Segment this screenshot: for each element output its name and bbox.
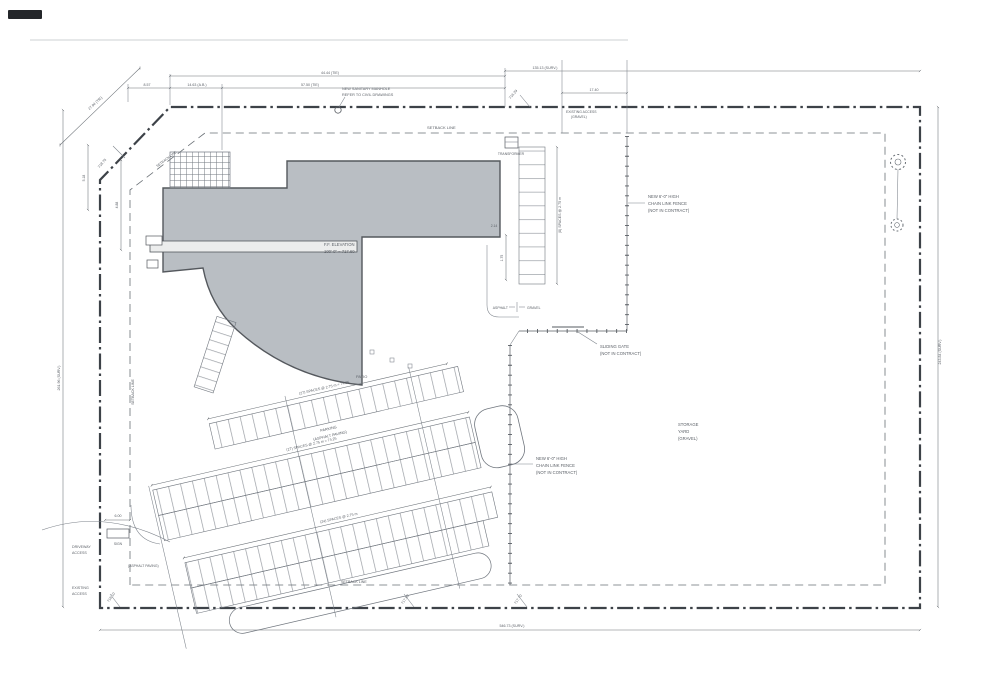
transformer: TRANSFORMER xyxy=(498,137,525,156)
east-row-count: (8) SPACES @ 2.75 m xyxy=(558,197,562,233)
setback-label-top: SETBACK LINE xyxy=(427,125,456,130)
dim-right: 243.84 (SURV.) xyxy=(938,340,942,365)
fence-note-upper: NEW 6'-0" HIGH CHAIN LINK FENCE (NOT IN … xyxy=(628,194,690,213)
site-plan-sheet: F.F. ELEVATION 100'-0" = 717.60 PATIO (8… xyxy=(0,0,981,676)
ff-elevation-value: 100'-0" = 717.60 xyxy=(324,249,355,254)
svg-text:(NOT IN CONTRACT): (NOT IN CONTRACT) xyxy=(600,351,642,356)
dimension-lines xyxy=(60,60,938,630)
sign-box xyxy=(107,529,129,538)
gravel-label: GRAVEL xyxy=(527,306,541,310)
trellis-grid xyxy=(170,152,230,188)
dim-2794: 27.94 (TIE) xyxy=(87,96,103,111)
tree-icon xyxy=(891,155,906,170)
dim-214: 2.14 xyxy=(491,224,498,228)
svg-text:CHAIN LINK FENCE: CHAIN LINK FENCE xyxy=(536,463,575,468)
exterior-stairs xyxy=(194,316,236,393)
scan-artifact xyxy=(8,10,628,40)
transformer-label: TRANSFORMER xyxy=(498,152,525,156)
svg-text:716.29: 716.29 xyxy=(508,89,518,100)
svg-text:718.75: 718.75 xyxy=(97,158,107,169)
dim-518: 5.18 xyxy=(82,175,86,182)
svg-text:YARD: YARD xyxy=(678,429,689,434)
svg-text:NEW 6'-0" HIGH: NEW 6'-0" HIGH xyxy=(648,194,679,199)
svg-text:(GRAVEL): (GRAVEL) xyxy=(571,115,587,119)
svg-text:STORAGE: STORAGE xyxy=(678,422,699,427)
svg-text:NEW SANITARY MANHOLE: NEW SANITARY MANHOLE xyxy=(342,87,391,91)
dim-1463: 14.63 (A.B.) xyxy=(187,83,206,87)
building-footprint xyxy=(146,152,500,393)
svg-text:DRIVEWAY: DRIVEWAY xyxy=(72,545,91,549)
dim-13513: 135.13 (SURV.) xyxy=(533,66,558,70)
svg-text:EXISTING: EXISTING xyxy=(72,586,89,590)
svg-text:(NOT IN CONTRACT): (NOT IN CONTRACT) xyxy=(536,470,578,475)
setback-label-left: SETBACK LINE xyxy=(131,379,135,405)
dim-857: 8.57 xyxy=(144,83,151,87)
svg-text:718.10: 718.10 xyxy=(106,592,116,603)
dim-175: 1.75 xyxy=(500,255,504,262)
dim-5750: 57.50 (TIE) xyxy=(301,83,319,87)
svg-text:NEW 6'-0" HIGH: NEW 6'-0" HIGH xyxy=(536,456,567,461)
storage-yard-label: STORAGE YARD (GRAVEL) xyxy=(678,422,699,441)
svg-text:ACCESS: ACCESS xyxy=(72,551,87,555)
svg-text:REFER TO CIVIL DRAWINGS: REFER TO CIVIL DRAWINGS xyxy=(342,93,394,97)
surface-transition: ASPHALT GRAVEL xyxy=(493,302,541,312)
tree-icon xyxy=(891,219,903,231)
svg-text:EXISTING ACCESS: EXISTING ACCESS xyxy=(566,110,597,114)
parking-field: (27) SPACES @ 2.75 m = 74.25 (27) SPACES… xyxy=(136,345,553,652)
svg-text:CHAIN LINK FENCE: CHAIN LINK FENCE xyxy=(648,201,687,206)
svg-text:(NOT IN CONTRACT): (NOT IN CONTRACT) xyxy=(648,208,690,213)
ff-elevation-label: F.F. ELEVATION xyxy=(324,242,355,247)
sign-label: SIGN xyxy=(114,542,123,546)
driveway-dim: 6.00 xyxy=(115,514,122,518)
parking-label: PARKING xyxy=(320,425,337,433)
setback-label-bottom: SETBACK LINE xyxy=(341,580,367,584)
asphalt-note: (ASPHALT PAVING) xyxy=(128,564,159,568)
existing-access-note: EXISTING ACCESS (GRAVEL) xyxy=(566,110,597,119)
svg-text:717.70: 717.70 xyxy=(513,594,523,605)
dim-bottom: 546.73 (SURV.) xyxy=(500,624,525,628)
dim-4444: 44.44 (TIE) xyxy=(321,71,339,75)
svg-text:(GRAVEL): (GRAVEL) xyxy=(678,436,698,441)
tree-symbols xyxy=(891,155,906,232)
svg-text:717.80: 717.80 xyxy=(400,594,410,605)
svg-text:SLIDING GATE: SLIDING GATE xyxy=(600,344,629,349)
patio-label: PATIO xyxy=(356,374,367,379)
dim-1740: 17.40 xyxy=(590,88,599,92)
sanitary-manhole: NEW SANITARY MANHOLE REFER TO CIVIL DRAW… xyxy=(335,87,394,113)
sliding-gate-note: SLIDING GATE (NOT IN CONTRACT) xyxy=(578,332,642,356)
svg-text:ACCESS: ACCESS xyxy=(72,592,87,596)
asphalt-label: ASPHALT xyxy=(493,306,508,310)
dim-left: 261.96 (SURV.) xyxy=(57,366,61,391)
site-plan-drawing: F.F. ELEVATION 100'-0" = 717.60 PATIO (8… xyxy=(0,0,981,676)
driveway-entrance: SIGN 6.00 DRIVEWAY ACCESS EXISTING ACCES… xyxy=(42,505,170,596)
dim-488: 4.88 xyxy=(115,202,119,209)
